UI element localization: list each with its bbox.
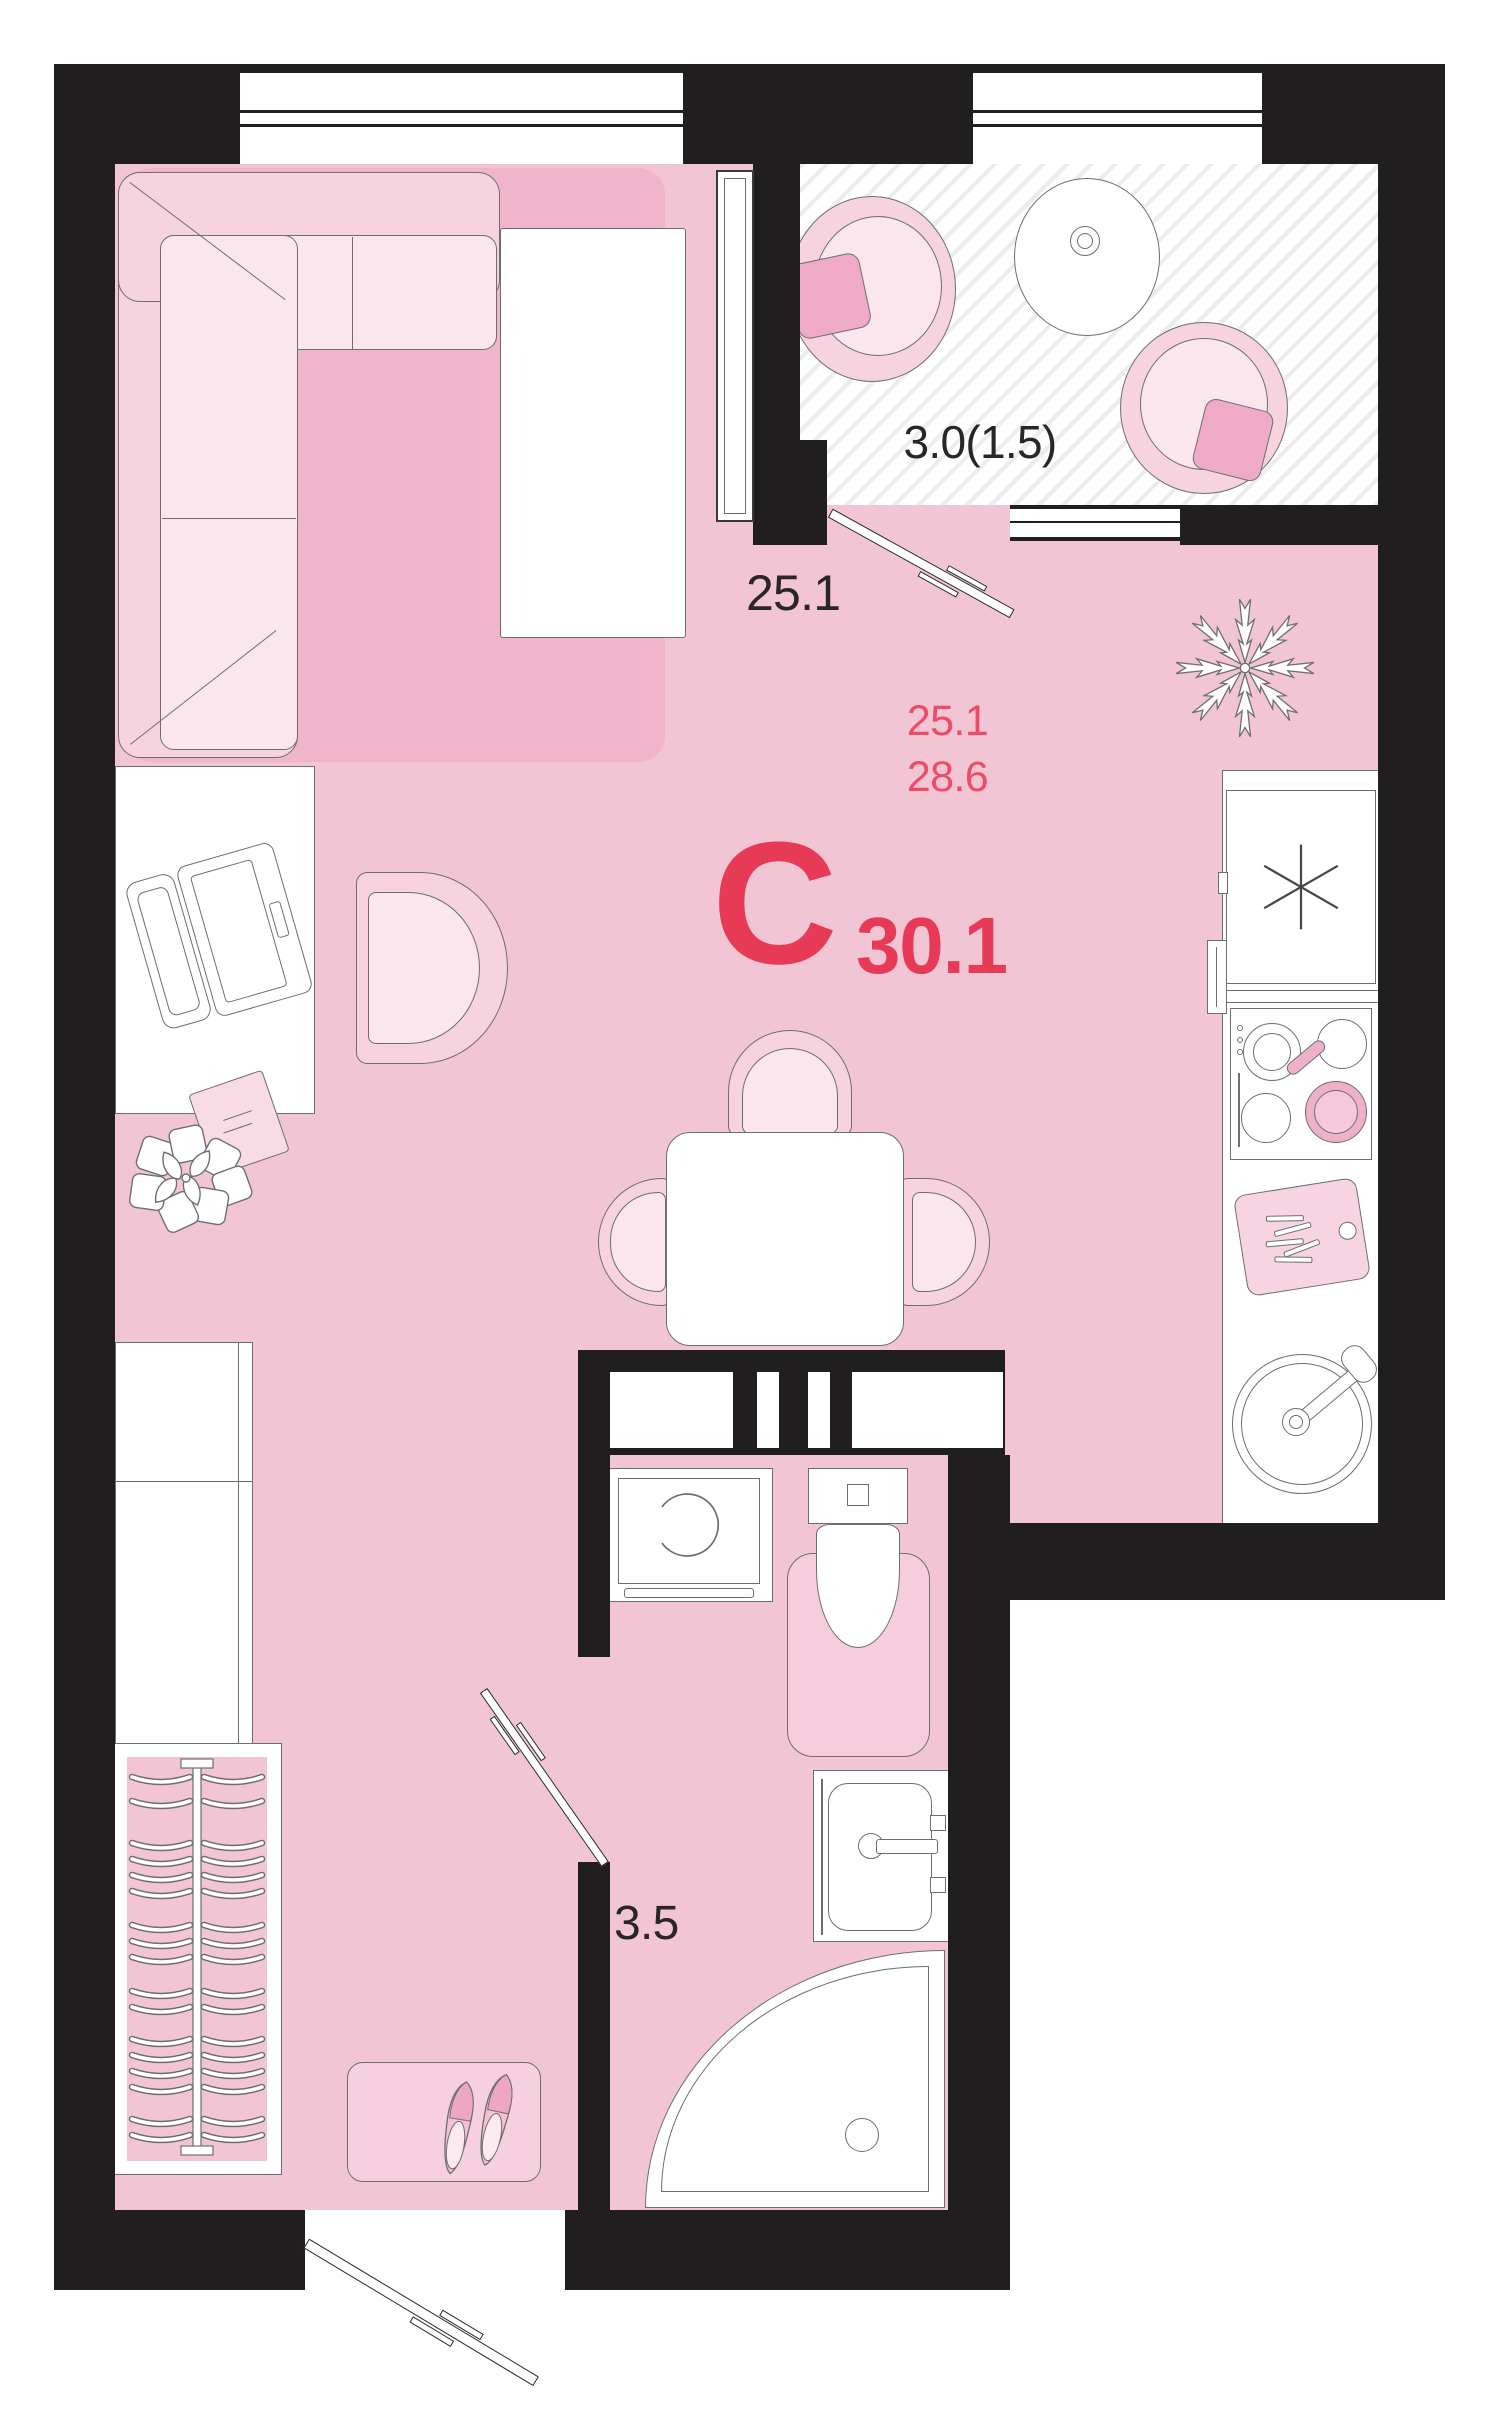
stove	[1230, 1008, 1372, 1160]
balcony-cup-inner	[1077, 233, 1093, 249]
bath-wall-inset	[610, 1372, 733, 1448]
wall-below-kitchen	[948, 1523, 1445, 1600]
main-room-area-label: 25.1	[746, 568, 840, 618]
wall-balcony-bottom-right	[1180, 505, 1378, 545]
washbasin-unit	[813, 1770, 950, 1942]
flower-plant	[108, 1114, 268, 1234]
fridge	[1226, 790, 1376, 984]
wall-right	[1378, 64, 1445, 1600]
bath-wall-inset	[852, 1372, 1003, 1448]
wardrobe-interior	[127, 1757, 267, 2161]
washing-machine	[607, 1468, 773, 1602]
sofa-cushion-seam	[352, 237, 353, 349]
dining-chair-top-seat	[742, 1048, 838, 1134]
floor-plan: 3.0(1.5) 25.1 25.1 28.6 С 30.1 3.5	[0, 0, 1499, 2412]
window-living-top	[240, 64, 683, 164]
entrance-opening	[305, 2210, 565, 2290]
unit-total-area: 30.1	[856, 906, 1007, 986]
sofa-cushion-seam	[162, 518, 296, 519]
unit-area-line1: 25.1	[846, 700, 988, 743]
shoes	[442, 2066, 542, 2178]
cutting-board	[1233, 1177, 1371, 1297]
balcony-area-label: 3.0(1.5)	[845, 419, 1115, 465]
fir-tree	[1152, 570, 1338, 766]
bed	[500, 228, 686, 638]
dining-table	[666, 1132, 904, 1346]
window-room-balcony	[716, 170, 754, 522]
balcony-table	[1014, 178, 1160, 336]
oven-handle	[1207, 940, 1227, 1014]
unit-area-line2: 28.6	[846, 756, 988, 799]
bath-wall-inset	[757, 1372, 779, 1448]
shower-drain	[845, 2118, 879, 2152]
counter-seam	[1222, 1002, 1378, 1003]
unit-type-letter: С	[712, 826, 835, 979]
bath-wall-inset	[808, 1372, 830, 1448]
wall-bottom-left	[54, 2210, 305, 2290]
wall-hall-divider	[578, 1862, 610, 2210]
sink-drain-inner	[1289, 1415, 1303, 1429]
hangers	[127, 1757, 267, 2161]
tall-cabinet	[115, 1342, 253, 1744]
counter-seam	[1222, 990, 1378, 991]
window-balcony-top	[973, 64, 1262, 164]
toilet-button	[847, 1484, 869, 1506]
fridge-handle	[1218, 872, 1228, 894]
wall-balcony-corner-block	[753, 440, 827, 545]
window-balcony-sill	[1010, 505, 1180, 541]
wall-bottom-pier	[565, 2210, 610, 2290]
wall-left	[54, 64, 115, 2290]
sofa-seat-vertical	[160, 235, 298, 750]
wall-bath-left	[578, 1455, 610, 1657]
wall-top-middle-pier	[683, 64, 973, 164]
bathroom-area-label: 3.5	[614, 1900, 679, 1948]
